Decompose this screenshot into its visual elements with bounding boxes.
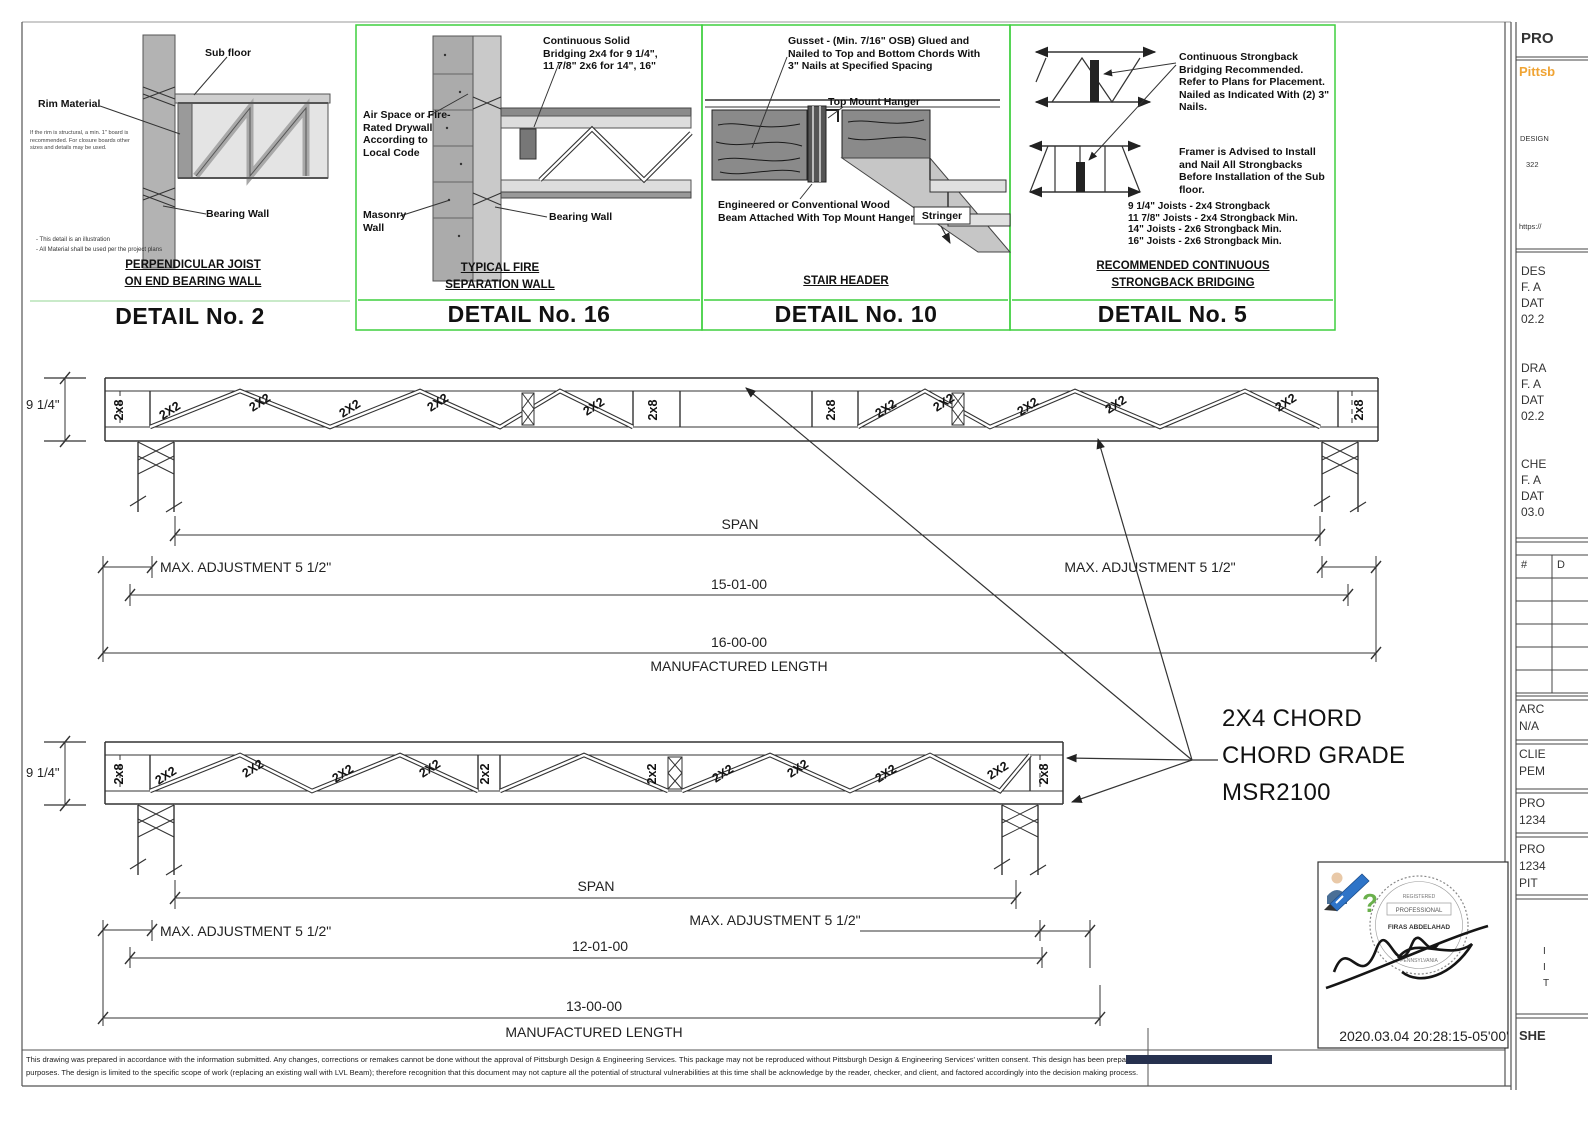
chord-note-line: MSR2100 bbox=[1222, 774, 1405, 811]
caption-line: PERPENDICULAR JOIST bbox=[110, 257, 276, 274]
svg-text:SPAN: SPAN bbox=[721, 516, 758, 532]
titleblock-fragments: I I T bbox=[1543, 944, 1549, 992]
detail-2-drawing bbox=[100, 35, 330, 268]
svg-text:2x2: 2x2 bbox=[478, 764, 492, 785]
svg-text:2X2: 2X2 bbox=[581, 395, 607, 419]
callout-stringer: Stringer bbox=[914, 210, 970, 223]
tb-line: 1234 bbox=[1519, 858, 1546, 875]
svg-text:2x8: 2x8 bbox=[112, 400, 126, 421]
truss-1-elevation bbox=[44, 372, 1381, 662]
tb-line: PRO bbox=[1519, 795, 1546, 812]
svg-text:2x8: 2x8 bbox=[1037, 764, 1051, 785]
tb-line: DAT bbox=[1521, 392, 1546, 408]
svg-text:15-01-00: 15-01-00 bbox=[711, 576, 767, 592]
svg-text:2X2: 2X2 bbox=[785, 757, 811, 781]
tb-line: CLIE bbox=[1519, 746, 1546, 763]
signature-box: REGISTERED PROFESSIONAL FIRAS ABDELAHAD … bbox=[1318, 862, 1508, 1048]
svg-text:2X2: 2X2 bbox=[240, 757, 266, 781]
disclaimer-text: purposes. The design is limited to the s… bbox=[26, 1068, 1138, 1077]
tb-line: CHE bbox=[1521, 456, 1546, 472]
callout-bridging: Continuous Solid Bridging 2x4 for 9 1/4"… bbox=[543, 35, 661, 73]
svg-text:12-01-00: 12-01-00 bbox=[572, 938, 628, 954]
callout-masonry-wall: Masonry Wall bbox=[363, 209, 425, 234]
chord-note-line: CHORD GRADE bbox=[1222, 737, 1405, 774]
caption-line: STAIR HEADER bbox=[766, 273, 926, 290]
disclaimer-text: This drawing was prepared in accordance … bbox=[26, 1055, 1126, 1064]
callout-wood-beam: Engineered or Conventional Wood Beam Att… bbox=[718, 199, 916, 224]
callout-sub-floor: Sub floor bbox=[205, 47, 275, 60]
tb-line: DES bbox=[1521, 263, 1546, 279]
svg-text:2x8: 2x8 bbox=[646, 400, 660, 421]
disclaimer-redacted: red for the client use only and for perm… bbox=[1126, 1055, 1272, 1064]
tb-line: DRA bbox=[1521, 360, 1546, 376]
titleblock-checked: CHE F. A DAT 03.0 bbox=[1521, 456, 1546, 520]
titleblock-design-label: DESIGN bbox=[1520, 134, 1549, 143]
titleblock-project-header: PRO bbox=[1521, 30, 1554, 47]
titleblock-architect: ARC N/A bbox=[1519, 701, 1544, 735]
callout-bearing-wall-16: Bearing Wall bbox=[549, 211, 634, 224]
tb-line: N/A bbox=[1519, 718, 1544, 735]
detail-10-label: DETAIL No. 10 bbox=[702, 301, 1010, 328]
svg-text:2x8: 2x8 bbox=[112, 764, 126, 785]
caption-line: RECOMMENDED CONTINUOUS bbox=[1088, 258, 1278, 275]
disclaimer-line-2: purposes. The design is limited to the s… bbox=[26, 1066, 1502, 1079]
titleblock-url: https:// bbox=[1519, 222, 1542, 231]
truss-2-elevation bbox=[44, 736, 1105, 1026]
signature-timestamp: 2020.03.04 20:28:15-05'00' bbox=[1336, 1028, 1512, 1044]
svg-text:PROFESSIONAL: PROFESSIONAL bbox=[1396, 908, 1443, 914]
detail-2-footnote-1: - This detail is an illustration bbox=[36, 236, 266, 245]
svg-text:2X2: 2X2 bbox=[873, 762, 899, 786]
truss-1-labels: 9 1/4" 2x8 2x8 2x8 2x8 2X2 2X2 2X2 2X2 2… bbox=[26, 391, 1366, 674]
titleblock-project-1: PRO 1234 bbox=[1519, 795, 1546, 829]
callout-rim-material: Rim Material bbox=[38, 98, 133, 111]
joist-strongback-spec: 9 1/4" Joists - 2x4 Strongback 11 7/8" J… bbox=[1128, 201, 1343, 247]
svg-text:MAX. ADJUSTMENT 5 1/2": MAX. ADJUSTMENT 5 1/2" bbox=[160, 923, 331, 939]
tb-line: PIT bbox=[1519, 875, 1546, 892]
question-mark-icon: ? bbox=[1362, 888, 1378, 918]
caption-line: ON END BEARING WALL bbox=[110, 274, 276, 291]
tb-line: F. A bbox=[1521, 472, 1546, 488]
svg-text:SPAN: SPAN bbox=[577, 878, 614, 894]
detail-2-label: DETAIL No. 2 bbox=[30, 303, 350, 330]
callout-air-space: Air Space or Fire-Rated Drywall Accordin… bbox=[363, 109, 451, 159]
svg-text:2x2: 2x2 bbox=[645, 764, 659, 785]
detail-2-caption: PERPENDICULAR JOIST ON END BEARING WALL bbox=[110, 257, 276, 291]
tb-line: F. A bbox=[1521, 279, 1546, 295]
svg-text:2x8: 2x8 bbox=[824, 400, 838, 421]
tb-line: PRO bbox=[1519, 841, 1546, 858]
callout-bearing-wall: Bearing Wall bbox=[206, 208, 301, 221]
svg-text:2X2: 2X2 bbox=[710, 762, 736, 786]
tb-line: 02.2 bbox=[1521, 408, 1546, 424]
sheet-linework: 9 1/4" 2x8 2x8 2x8 2x8 2X2 2X2 2X2 2X2 2… bbox=[0, 0, 1588, 1138]
chord-note-line: 2X4 CHORD bbox=[1222, 700, 1405, 737]
svg-text:MAX. ADJUSTMENT 5 1/2": MAX. ADJUSTMENT 5 1/2" bbox=[1064, 559, 1235, 575]
titleblock-sheet-label: SHE bbox=[1519, 1028, 1546, 1043]
detail-5-drawing bbox=[1030, 52, 1176, 192]
svg-text:13-00-00: 13-00-00 bbox=[566, 998, 622, 1014]
detail-2-note: If the rim is structural, a min. 1" boar… bbox=[30, 130, 134, 153]
titleblock-client: CLIE PEM bbox=[1519, 746, 1546, 780]
tb-line: I bbox=[1543, 944, 1549, 960]
svg-text:9 1/4": 9 1/4" bbox=[26, 397, 60, 412]
svg-text:2X2: 2X2 bbox=[417, 757, 443, 781]
svg-text:16-00-00: 16-00-00 bbox=[711, 634, 767, 650]
disclaimer-line-1: This drawing was prepared in accordance … bbox=[26, 1053, 1502, 1066]
tb-line: DAT bbox=[1521, 488, 1546, 504]
titleblock-project-2: PRO 1234 PIT bbox=[1519, 841, 1546, 892]
tb-line: 1234 bbox=[1519, 812, 1546, 829]
detail-16-label: DETAIL No. 16 bbox=[356, 301, 702, 328]
rev-table-num-header: # bbox=[1521, 559, 1527, 571]
chord-grade-note: 2X4 CHORD CHORD GRADE MSR2100 bbox=[1222, 700, 1405, 811]
titleblock-address: 322 bbox=[1526, 160, 1539, 169]
detail-10-caption: STAIR HEADER bbox=[766, 273, 926, 290]
svg-text:FIRAS ABDELAHAD: FIRAS ABDELAHAD bbox=[1388, 924, 1451, 931]
callout-framer: Framer is Advised to Install and Nail Al… bbox=[1179, 146, 1334, 196]
tb-line: 02.2 bbox=[1521, 311, 1546, 327]
detail-5-label: DETAIL No. 5 bbox=[1010, 301, 1335, 328]
tb-line: I bbox=[1543, 960, 1549, 976]
svg-text:MAX. ADJUSTMENT 5 1/2": MAX. ADJUSTMENT 5 1/2" bbox=[689, 912, 860, 928]
svg-text:PENNSYLVANIA: PENNSYLVANIA bbox=[1400, 958, 1438, 964]
spec-line: 11 7/8" Joists - 2x4 Strongback Min. bbox=[1128, 213, 1343, 225]
titleblock-company: Pittsb bbox=[1519, 64, 1555, 79]
titleblock-designed: DES F. A DAT 02.2 bbox=[1521, 263, 1546, 327]
callout-gusset: Gusset - (Min. 7/16" OSB) Glued and Nail… bbox=[788, 35, 988, 73]
rev-table-desc-header: D bbox=[1557, 559, 1565, 571]
callout-strongback: Continuous Strongback Bridging Recommend… bbox=[1179, 51, 1331, 114]
caption-line: TYPICAL FIRE bbox=[420, 260, 580, 277]
tb-line: PEM bbox=[1519, 763, 1546, 780]
svg-text:2x8: 2x8 bbox=[1352, 400, 1366, 421]
drawing-sheet: 9 1/4" 2x8 2x8 2x8 2x8 2X2 2X2 2X2 2X2 2… bbox=[0, 0, 1588, 1138]
svg-text:9 1/4": 9 1/4" bbox=[26, 765, 60, 780]
spec-line: 16" Joists - 2x6 Strongback Min. bbox=[1128, 236, 1343, 248]
caption-line: SEPARATION WALL bbox=[420, 277, 580, 294]
spec-line: 9 1/4" Joists - 2x4 Strongback bbox=[1128, 201, 1343, 213]
svg-text:MAX. ADJUSTMENT 5 1/2": MAX. ADJUSTMENT 5 1/2" bbox=[160, 559, 331, 575]
tb-line: 03.0 bbox=[1521, 504, 1546, 520]
tb-line: F. A bbox=[1521, 376, 1546, 392]
detail-5-caption: RECOMMENDED CONTINUOUS STRONGBACK BRIDGI… bbox=[1088, 258, 1278, 292]
tb-line: DAT bbox=[1521, 295, 1546, 311]
detail-2-footnote-2: - All Material shall be used per the pro… bbox=[36, 246, 266, 255]
spec-line: 14" Joists - 2x6 Strongback Min. bbox=[1128, 224, 1343, 236]
detail-16-caption: TYPICAL FIRE SEPARATION WALL bbox=[420, 260, 580, 294]
titleblock-drawn: DRA F. A DAT 02.2 bbox=[1521, 360, 1546, 424]
callout-top-mount-hanger: Top Mount Hanger bbox=[828, 96, 943, 109]
tb-line: T bbox=[1543, 976, 1549, 992]
tb-line: ARC bbox=[1519, 701, 1544, 718]
svg-text:MANUFACTURED LENGTH: MANUFACTURED LENGTH bbox=[650, 658, 827, 674]
caption-line: STRONGBACK BRIDGING bbox=[1088, 275, 1278, 292]
svg-text:MANUFACTURED LENGTH: MANUFACTURED LENGTH bbox=[505, 1024, 682, 1040]
svg-text:REGISTERED: REGISTERED bbox=[1403, 894, 1436, 900]
